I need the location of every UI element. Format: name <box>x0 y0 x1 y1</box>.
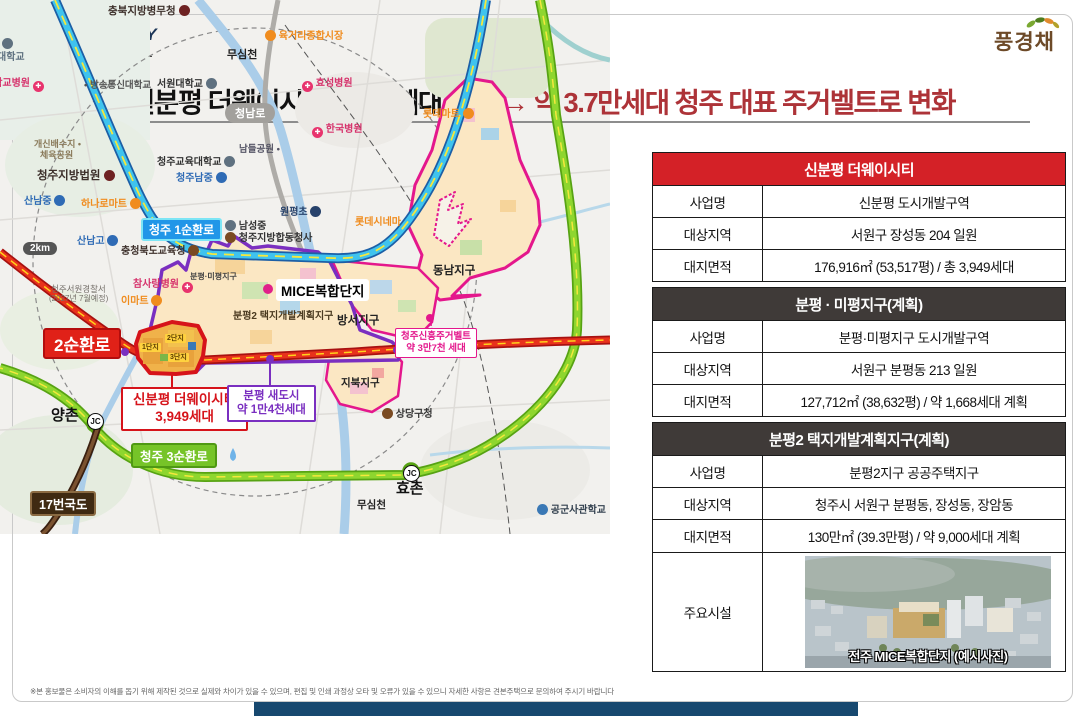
unit1-label: 1단지 <box>140 343 161 352</box>
market-icon <box>151 295 162 306</box>
row-value: 서원구 분평동 213 일원 <box>763 352 1065 384</box>
market-icon <box>130 198 141 209</box>
table-bunpyeong-mipyeong: 분평 · 미평지구(계획) 사업명 분평·미평지구 도시개발구역 대상지역 서원… <box>652 287 1066 417</box>
row-label: 대지면적 <box>653 519 763 552</box>
route17-road-label: 17번국도 <box>30 491 96 516</box>
site-callout-line1: 신분평 더웨이시티 <box>133 392 236 409</box>
school-icon <box>216 172 227 183</box>
poi-joint-gov-complex: 청주지방합동청사 <box>225 232 312 245</box>
gov-office-icon <box>188 245 199 256</box>
poi-open-university: • 방송통신대학교 <box>84 80 151 92</box>
poi-sports-park: 체육공원 <box>40 149 73 161</box>
bullet-icon: • <box>84 80 87 91</box>
poi-text: 한국병원 <box>326 124 363 135</box>
poi-hyochon: 효촌 <box>396 483 424 495</box>
academy-icon <box>537 504 548 515</box>
row-value: 130만㎡ (39.3만평) / 약 9,000세대 계획 <box>763 519 1065 552</box>
row-value: 서원구 장성동 204 일원 <box>763 217 1065 249</box>
poi-cheongju-nam-middle: 청주남중 <box>176 172 227 185</box>
poi-hyosung-hospital: ✚ 효성병원 <box>302 78 353 92</box>
yangchon-jc-icon: JC <box>87 413 104 430</box>
row-value: 신분평 도시개발구역 <box>763 185 1065 217</box>
site-callout-line2: 3,949세대 <box>133 409 236 426</box>
poi-education-office: 충청북도교육청 <box>121 245 199 258</box>
row-value: 176,916㎡ (53,517평) / 총 3,949세대 <box>763 249 1065 281</box>
beltway-callout: 청주신흥주거벨트 약 3만7천 세대 <box>395 328 477 358</box>
facility-caption: 전주 MICE복합단지 (예시사진) <box>805 646 1051 665</box>
poi-yangchon: 양촌 <box>51 410 79 422</box>
poi-hanaro-mart: 하나로마트 <box>81 198 141 211</box>
court-icon <box>104 170 115 181</box>
location-map: 분평·미평지구 분평2 택지개발계획지구 방서지구 동남지구 지북지구 MICE… <box>0 0 610 534</box>
poi-text: 청주남중 <box>176 173 213 184</box>
row-label: 대상지역 <box>653 217 763 249</box>
poi-text: 원평초 <box>280 207 308 218</box>
poi-text: 육거리종합시장 <box>279 31 343 42</box>
poi-text: 대학교병원 <box>0 78 30 89</box>
table-title: 분평2 택지개발계획지구(계획) <box>653 423 1065 455</box>
poi-text: 청주지방법원 <box>37 170 100 182</box>
district-label-bunpyeong2: 분평2 택지개발계획지구 <box>233 307 333 322</box>
hospital-cross-icon: ✚ <box>33 81 44 92</box>
poi-text: 산남고 <box>77 236 105 247</box>
district-label-jibuk: 지북지구 <box>341 375 380 390</box>
poi-univ-hospital: 대학교병원 ✚ <box>0 78 44 92</box>
poi-airforce-academy: 공군사관학교 <box>537 504 606 517</box>
university-icon <box>206 78 217 89</box>
beltway-callout-line2: 약 3만7천 세대 <box>401 343 471 355</box>
ring2-road-label: 2순환로 <box>43 328 121 359</box>
poi-text: 이마트 <box>121 296 149 307</box>
school-icon <box>107 235 118 246</box>
table-bunpyeong2: 분평2 택지개발계획지구(계획) 사업명 분평2지구 공공주택지구 대상지역 청… <box>652 422 1066 672</box>
poi-emart: 이마트 <box>121 295 162 308</box>
poi-lotte-cinema: 롯데시네마 <box>355 217 401 229</box>
poi-hankook-hospital: ✚ 한국병원 <box>312 124 363 138</box>
poi-namdeul-park: 남들공원 • <box>239 144 280 156</box>
row-label: 대상지역 <box>653 352 763 384</box>
poi-text: 롯데마트 <box>423 109 460 120</box>
poi-text: 남성중 <box>239 221 267 232</box>
row-label: 주요시설 <box>653 552 763 671</box>
poi-university: 대학교 <box>0 52 25 64</box>
district-label-bunpyeong-mipyeong: 분평·미평지구 <box>190 271 237 282</box>
market-icon <box>265 30 276 41</box>
beltway-callout-line1: 청주신흥주거벨트 <box>401 331 471 343</box>
poi-district-court: 청주지방법원 <box>37 170 115 182</box>
hospital-cross-icon: ✚ <box>182 282 193 293</box>
poi-wonpyeong-elementary: 원평초 <box>280 206 321 219</box>
poi-sannam-middle: 산남중 <box>24 195 65 208</box>
disclaimer-text: ※본 홍보물은 소비자의 이해를 돕기 위해 제작된 것으로 실제와 차이가 있… <box>30 686 614 697</box>
row-label: 대지면적 <box>653 384 763 416</box>
radius-2km-label: 2km <box>23 242 57 255</box>
row-value: 분평2지구 공공주택지구 <box>763 455 1065 487</box>
poi-text: 방송통신대학교 <box>90 80 151 91</box>
right-logo-text: 풍경채 <box>994 31 1055 54</box>
poi-yukgeori-market: 육거리종합시장 <box>265 30 343 43</box>
university-icon <box>224 156 235 167</box>
poi-sannam-high: 산남고 <box>77 235 118 248</box>
row-value: 127,712㎡ (38,632평) / 약 1,668세대 계획 <box>763 384 1065 416</box>
poi-seowon-university: 서원대학교 <box>157 78 217 91</box>
district-label-dongnam: 동남지구 <box>433 262 475 278</box>
poi-univ-icon <box>2 38 13 51</box>
row-value: 분평·미평지구 도시개발구역 <box>763 320 1065 352</box>
poi-text: 충청북도교육청 <box>121 246 185 257</box>
poi-sangdang-office: 상당구청 <box>382 408 433 421</box>
poi-text: 효성병원 <box>316 78 353 89</box>
cheongnam-ro-label: 청남로 <box>225 103 275 123</box>
newtown-callout-line1: 분평 새도시 <box>237 389 306 403</box>
unit3-label: 3단지 <box>168 353 189 362</box>
hospital-cross-icon: ✚ <box>302 81 313 92</box>
gov-office-icon <box>225 232 236 243</box>
poi-text: 상당구청 <box>396 409 433 420</box>
poi-musimcheon-top: 무심천 <box>227 49 257 61</box>
leaf-icon <box>1023 14 1061 30</box>
poi-text: 산남중 <box>24 196 52 207</box>
row-label: 사업명 <box>653 185 763 217</box>
poi-lotte-mart: 롯데마트 <box>423 108 474 121</box>
table-thewaycity: 신분평 더웨이시티 사업명 신분평 도시개발구역 대상지역 서원구 장성동 20… <box>652 152 1066 282</box>
row-value: 청주시 서원구 분평동, 장성동, 장암동 <box>763 487 1065 519</box>
school-icon <box>310 206 321 217</box>
poi-text: 청주지방합동청사 <box>239 233 313 244</box>
ring1-road-label: 청주 1순환로 <box>141 218 222 241</box>
gov-office-icon <box>382 408 393 419</box>
poi-military-office: 충북지방병무청 <box>108 5 190 17</box>
mice-complex-label: MICE복합단지 <box>276 279 369 301</box>
university-icon <box>2 38 13 49</box>
unit2-label: 2단지 <box>165 334 186 343</box>
poi-text: 공군사관학교 <box>551 505 606 516</box>
facility-photo: 전주 MICE복합단지 (예시사진) <box>805 556 1051 668</box>
poi-text: 충북지방병무청 <box>108 5 176 17</box>
district-label-bangseo: 방서지구 <box>337 312 379 328</box>
row-label: 대지면적 <box>653 249 763 281</box>
newtown-callout: 분평 새도시 약 1만4천세대 <box>227 385 316 422</box>
market-icon <box>463 108 474 119</box>
school-icon <box>54 195 65 206</box>
pungkyungchae-logo: 풍경채 <box>994 26 1055 56</box>
poi-text: 참사랑병원 <box>133 279 179 290</box>
gov-office-icon <box>179 5 190 16</box>
row-label: 사업명 <box>653 320 763 352</box>
poi-seowon-police-date: (2027년 7월예정) <box>49 293 108 305</box>
ring3-road-label: 청주 3순환로 <box>131 443 217 468</box>
hospital-cross-icon: ✚ <box>312 127 323 138</box>
newtown-callout-line2: 약 1만4천세대 <box>237 403 306 417</box>
table-title: 신분평 더웨이시티 <box>653 153 1065 185</box>
poi-text: 하나로마트 <box>81 199 127 210</box>
facility-cell: 전주 MICE복합단지 (예시사진) <box>763 552 1065 671</box>
school-icon <box>225 220 236 231</box>
table-title: 분평 · 미평지구(계획) <box>653 288 1065 320</box>
row-label: 사업명 <box>653 455 763 487</box>
flyer-page: 신분평 THEWAY CITY 제일풍경채|1BL 풍경채 신분평 더웨이시티 … <box>0 0 1085 718</box>
row-label: 대상지역 <box>653 487 763 519</box>
poi-text: 서원대학교 <box>157 79 203 90</box>
bottom-bar <box>254 702 858 716</box>
poi-chamsarang-hospital: 참사랑병원 ✚ <box>133 279 193 293</box>
poi-text: 청주교육대학교 <box>157 157 221 168</box>
poi-musimcheon-bottom: 무심천 <box>357 499 386 511</box>
poi-education-university: 청주교육대학교 <box>157 156 235 169</box>
